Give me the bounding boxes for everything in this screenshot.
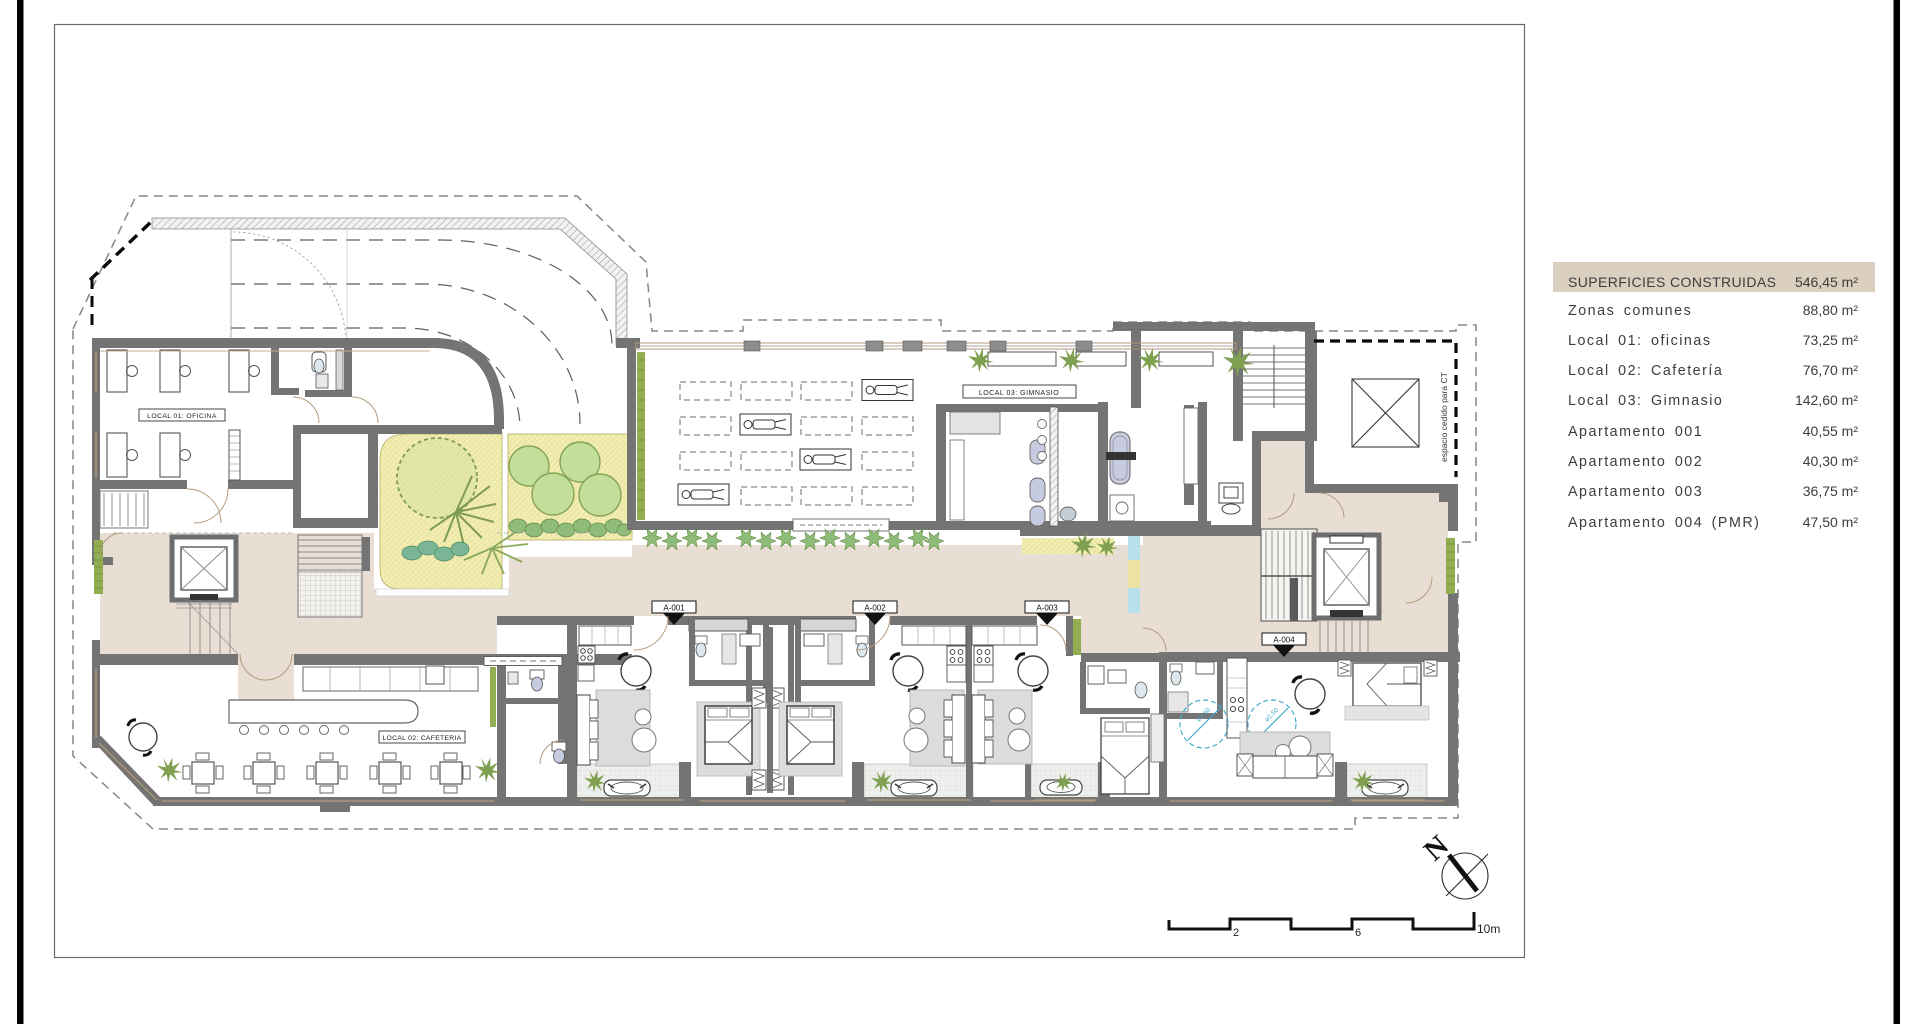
svg-text:Apartamento 004 (PMR): Apartamento 004 (PMR)	[1568, 515, 1760, 531]
svg-text:Local 03: Gimnasio: Local 03: Gimnasio	[1568, 393, 1723, 409]
svg-text:76,70 m²: 76,70 m²	[1803, 362, 1859, 378]
svg-text:Local 01: oficinas: Local 01: oficinas	[1568, 333, 1711, 349]
svg-text:LOCAL 03: GIMNASIO: LOCAL 03: GIMNASIO	[979, 390, 1059, 397]
svg-text:A-001: A-001	[663, 604, 685, 613]
svg-text:40,30 m²: 40,30 m²	[1803, 453, 1859, 469]
svg-text:142,60 m²: 142,60 m²	[1795, 392, 1858, 408]
svg-text:546,45 m²: 546,45 m²	[1795, 274, 1858, 290]
svg-text:LOCAL 02: CAFETERIA: LOCAL 02: CAFETERIA	[382, 735, 461, 742]
svg-text:88,80 m²: 88,80 m²	[1803, 302, 1859, 318]
svg-text:Apartamento 001: Apartamento 001	[1568, 424, 1703, 440]
svg-text:36,75 m²: 36,75 m²	[1803, 483, 1859, 499]
svg-text:73,25 m²: 73,25 m²	[1803, 332, 1859, 348]
svg-text:Local 02: Cafetería: Local 02: Cafetería	[1568, 363, 1723, 379]
svg-text:Apartamento 003: Apartamento 003	[1568, 484, 1703, 500]
svg-text:A-002: A-002	[864, 604, 886, 613]
svg-text:47,50 m²: 47,50 m²	[1803, 514, 1859, 530]
svg-text:6: 6	[1355, 927, 1361, 939]
svg-text:10m: 10m	[1477, 922, 1500, 936]
svg-text:LOCAL 01: OFICINA: LOCAL 01: OFICINA	[147, 413, 217, 420]
svg-text:Zonas comunes: Zonas comunes	[1568, 303, 1692, 319]
svg-text:Apartamento 002: Apartamento 002	[1568, 454, 1703, 470]
svg-text:A-004: A-004	[1273, 636, 1295, 645]
svg-text:2: 2	[1233, 927, 1239, 939]
svg-text:A-003: A-003	[1036, 604, 1058, 613]
svg-text:40,55 m²: 40,55 m²	[1803, 423, 1859, 439]
svg-text:SUPERFICIES CONSTRUIDAS: SUPERFICIES CONSTRUIDAS	[1568, 274, 1776, 290]
svg-text:espacio cedido para CT: espacio cedido para CT	[1439, 372, 1449, 462]
